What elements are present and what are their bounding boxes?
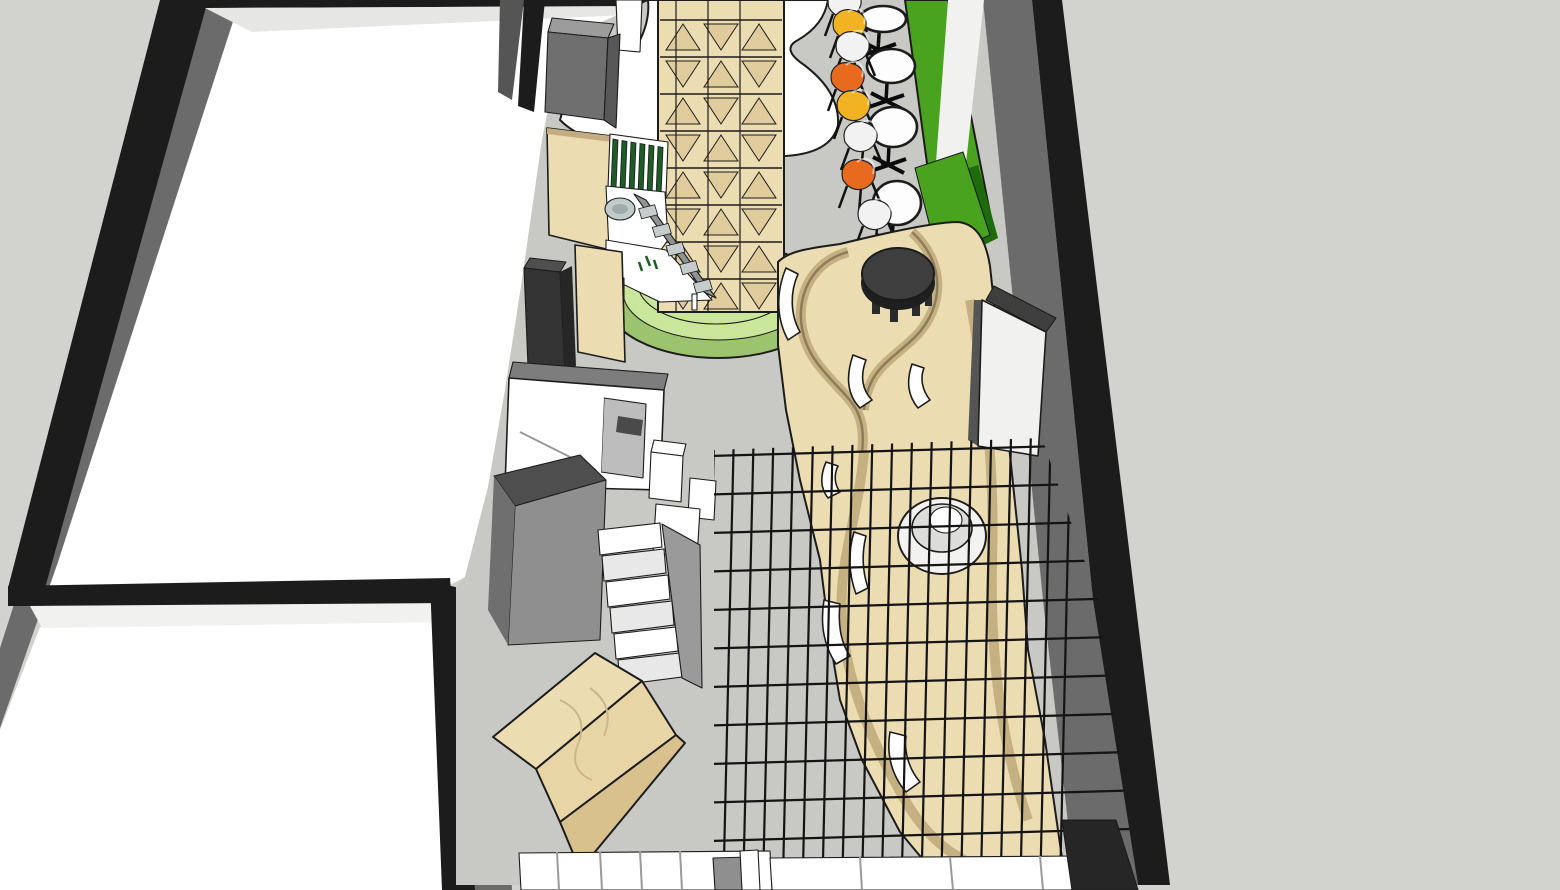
white-post — [740, 850, 760, 890]
chair-shell — [858, 200, 891, 230]
desk-leg — [692, 294, 697, 310]
table-top — [860, 6, 906, 32]
lower-room-floor — [0, 616, 456, 890]
chair-shell — [837, 91, 870, 121]
counter-lower-panel — [575, 245, 625, 362]
counter-front-panel — [547, 128, 612, 250]
window-opening — [601, 398, 646, 478]
model-viewport[interactable] — [0, 0, 1560, 890]
table-top — [862, 248, 934, 300]
sink-drain — [612, 204, 628, 214]
chair-shell — [836, 32, 869, 62]
chair-shell — [831, 63, 864, 93]
ring-inner — [930, 507, 962, 533]
bench-planks-right — [770, 856, 1086, 890]
dark-box-front — [524, 268, 565, 372]
gray-box-front — [545, 32, 608, 120]
table-top — [867, 49, 915, 83]
chair-shell — [844, 122, 877, 152]
chair-shell — [842, 160, 875, 190]
white-box — [649, 452, 683, 502]
gray-block-front — [508, 480, 606, 645]
scene-canvas — [0, 0, 1560, 890]
